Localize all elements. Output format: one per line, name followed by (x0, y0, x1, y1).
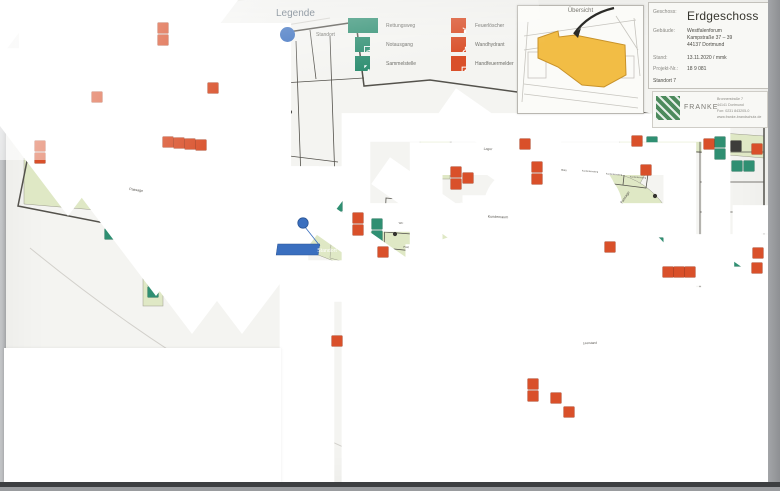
titleblock-panel: Geschoss: Erdgeschoss Gebäude: Westfalen… (648, 2, 769, 89)
franke-block: FRANKE Bronnerstraße 7 44141 Dortmund Fo… (652, 91, 768, 128)
fire-alarm-legend-icon (451, 56, 466, 71)
standort-number: Standort 7 (653, 78, 676, 84)
franke-logo (656, 96, 680, 120)
building-name: Westfalenforum (687, 28, 722, 34)
building-street: Kampstraße 37 – 39 (687, 35, 732, 41)
franke-web: www.franke-brandschutz.de (717, 115, 761, 119)
building-city: 44137 Dortmund (687, 42, 724, 48)
franke-name: FRANKE (684, 104, 718, 111)
wall-background (768, 0, 780, 491)
glass-glare-soft (620, 300, 780, 480)
redaction-overlay (4, 348, 281, 483)
gebaeude-label: Gebäude: (653, 28, 687, 34)
stand-date: 13.11.2020 / mmk (687, 55, 727, 61)
geschoss-label: Geschoss: (653, 9, 687, 23)
stand-label: Stand: (653, 55, 687, 61)
franke-phone: Fon: 0231 843205-0 (717, 109, 749, 113)
floor-name: Erdgeschoss (687, 9, 759, 23)
projekt-label: Projekt-Nr.: (653, 66, 687, 72)
legend-label-handfeuermelder: Handfeuermelder (475, 61, 514, 67)
franke-city: 44141 Dortmund (717, 103, 744, 107)
wall-below-frame (0, 487, 780, 491)
projekt-number: 18 9 081 (687, 66, 706, 72)
highlighted-building (538, 31, 626, 87)
photo-of-escape-plan: PassagePassageLagerKundenraumBüroKundenb… (0, 0, 780, 491)
franke-street: Bronnerstraße 7 (717, 97, 743, 101)
